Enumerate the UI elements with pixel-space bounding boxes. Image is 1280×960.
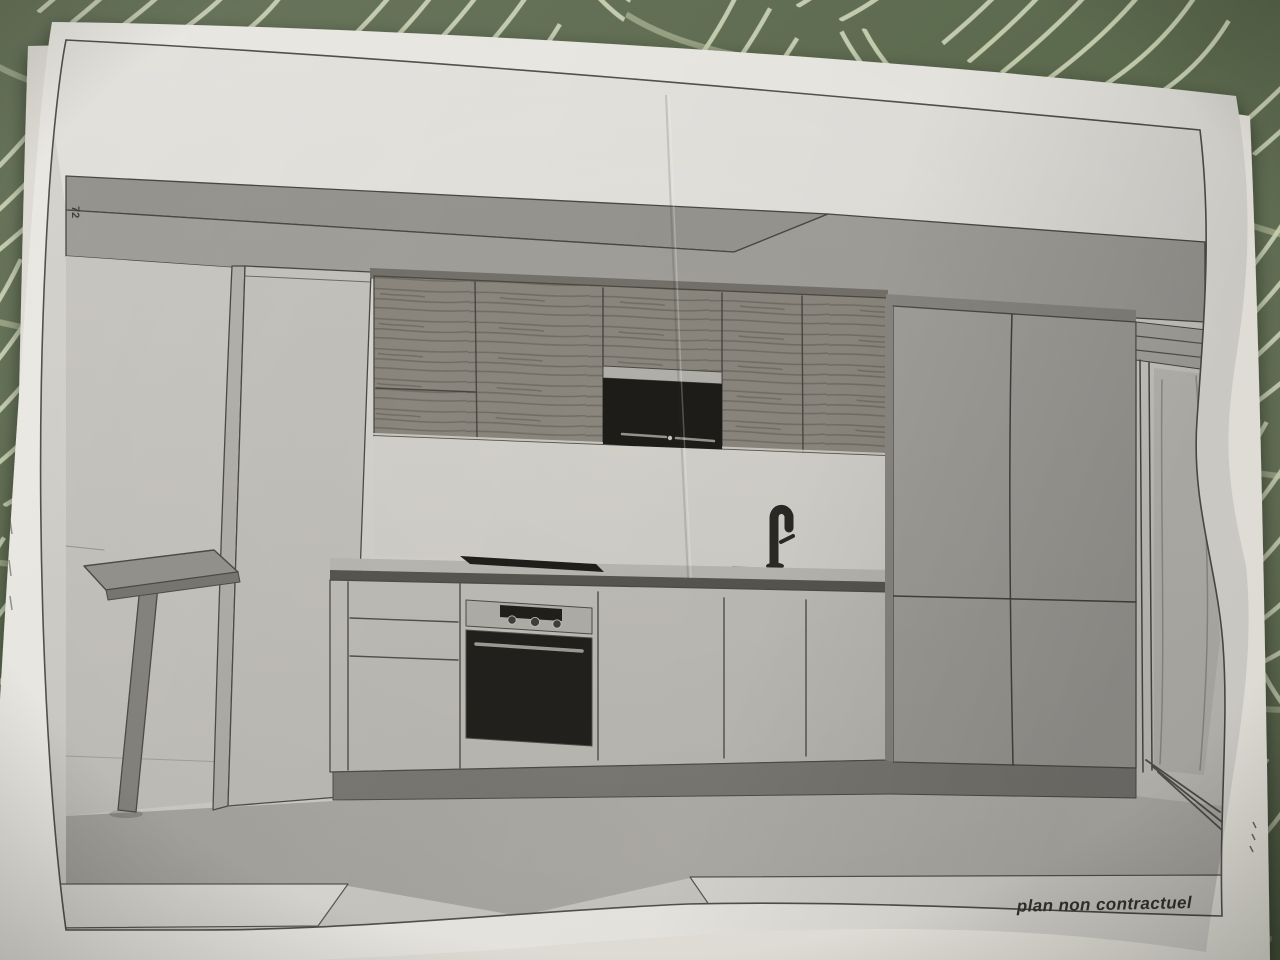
kitchen-plan-scene: plan non contractuel 72 [0,0,1280,960]
photo-of-kitchen-plan: plan non contractuel 72 [0,0,1280,960]
photo-vignette [0,0,1280,960]
